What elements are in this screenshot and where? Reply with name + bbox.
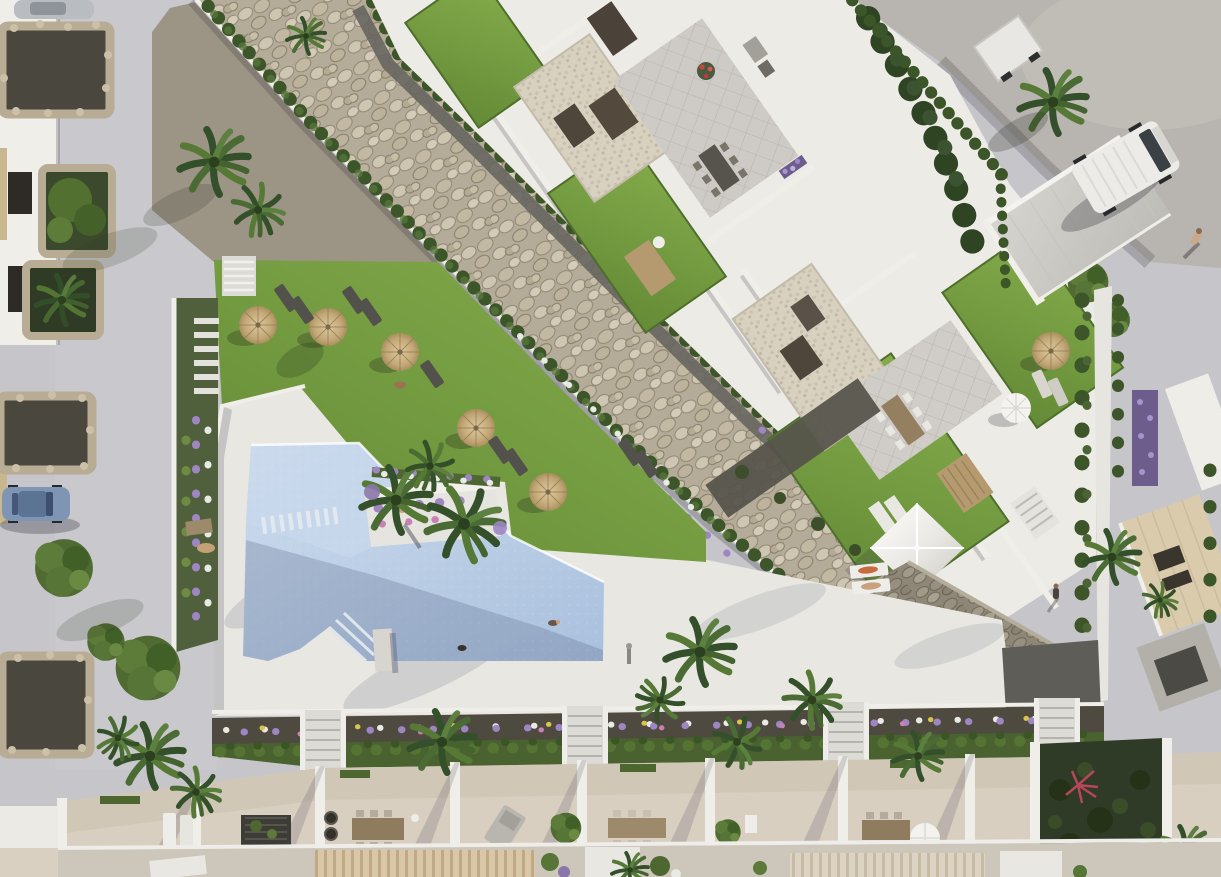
pergola-roof-2 xyxy=(790,853,985,877)
staircase-1 xyxy=(300,710,346,770)
person-on-lawn xyxy=(394,382,406,389)
flowerbed-left xyxy=(174,298,219,652)
silver-car-partial xyxy=(14,0,94,19)
aerial-scene-svg xyxy=(0,0,1221,877)
planter-bottom xyxy=(2,651,92,756)
aerial-render-image xyxy=(0,0,1221,877)
swimmer-2 xyxy=(458,645,467,651)
lawn-steps xyxy=(222,256,256,296)
pergola-table xyxy=(241,815,291,847)
planter-gravel xyxy=(0,391,94,473)
planter-top-left xyxy=(0,20,112,117)
planter-palm xyxy=(26,264,100,336)
purple-flowerbed xyxy=(1132,390,1158,486)
pool-step-block xyxy=(373,628,399,673)
planter-red-flowers xyxy=(697,62,715,80)
staircase-2 xyxy=(562,706,608,766)
pergola-roof-1 xyxy=(315,850,535,877)
staircase-3 xyxy=(823,702,869,762)
blue-car xyxy=(0,485,80,534)
